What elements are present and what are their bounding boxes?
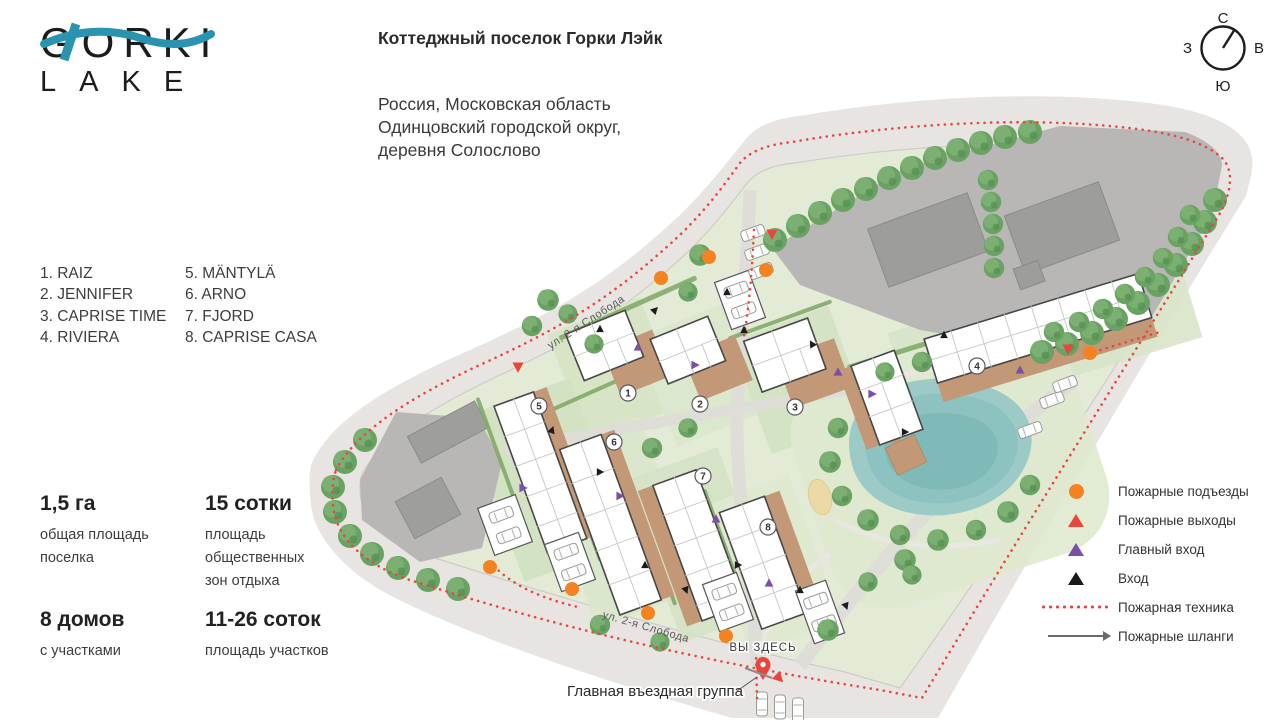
page-title: Коттеджный поселок Горки Лэйк	[378, 28, 708, 49]
stat-value: 11-26 соток	[205, 608, 365, 632]
fire-access-circle-icon	[1069, 484, 1084, 499]
house-list-column-1: 1. RAIZ 2. JENNIFER 3. CAPRISE TIME 4. R…	[40, 263, 190, 348]
legend-label: Вход	[1118, 571, 1149, 586]
stat-houses-count: 8 домов с участками	[40, 608, 200, 663]
stat-label: зон отдыха	[205, 570, 365, 593]
legend-row-fire-trucks: Пожарная техника	[1040, 599, 1275, 615]
stat-value: 8 домов	[40, 608, 200, 632]
legend-label: Пожарные шланги	[1118, 629, 1234, 644]
stat-value: 15 сотки	[205, 492, 365, 516]
legend-row-fire-access: Пожарные подъезды	[1040, 483, 1275, 499]
legend-row-main-entrance: Главный вход	[1040, 541, 1275, 557]
house-number-4: 4	[969, 358, 985, 374]
fire-exit-triangle-icon	[1068, 514, 1084, 527]
stat-label: общая площадь	[40, 524, 200, 547]
compass-south-label: Ю	[1215, 78, 1230, 95]
address-line-3: деревня Солослово	[378, 139, 708, 162]
house-list-item: 7. FJORD	[185, 306, 345, 327]
stat-value: 1,5 га	[40, 492, 200, 516]
svg-text:2: 2	[697, 400, 703, 411]
house-list-item: 3. CAPRISE TIME	[40, 306, 190, 327]
you-are-here-label: ВЫ ЗДЕСЬ	[729, 642, 796, 654]
legend-label: Пожарные подъезды	[1118, 484, 1249, 499]
legend-label: Главный вход	[1118, 542, 1204, 557]
house-list-item: 4. RIVIERA	[40, 327, 190, 348]
house-list-item: 6. ARNO	[185, 284, 345, 305]
legend-label: Пожарная техника	[1118, 600, 1234, 615]
house-number-7: 7	[695, 468, 711, 484]
logo-word-lake: LAKE	[40, 68, 215, 97]
legend-row-fire-hoses: Пожарные шланги	[1040, 628, 1275, 644]
svg-text:4: 4	[974, 362, 980, 373]
stat-total-area: 1,5 га общая площадь поселка	[40, 492, 200, 570]
address: Россия, Московская область Одинцовский г…	[378, 93, 708, 162]
stat-label: поселка	[40, 547, 200, 570]
compass: С Ю З В	[1183, 10, 1264, 95]
logo: GORKI LAKE	[40, 22, 215, 97]
stat-public-area: 15 сотки площадь общественных зон отдыха	[205, 492, 365, 593]
svg-text:5: 5	[536, 402, 542, 413]
map-legend: Пожарные подъезды Пожарные выходы Главны…	[1040, 483, 1275, 657]
compass-north-label: С	[1218, 10, 1229, 27]
stat-label: площадь участков	[205, 640, 365, 663]
house-list: 1. RAIZ 2. JENNIFER 3. CAPRISE TIME 4. R…	[40, 263, 190, 348]
svg-text:1: 1	[625, 389, 631, 400]
address-line-2: Одинцовский городской округ,	[378, 116, 708, 139]
house-number-5: 5	[531, 398, 547, 414]
svg-text:3: 3	[792, 403, 798, 414]
house-number-2: 2	[692, 396, 708, 412]
header: Коттеджный поселок Горки Лэйк Россия, Мо…	[378, 28, 708, 162]
page: 1 2 3 4 5 6 7 8 ул. 2-я Слобода ул. 2-я …	[0, 0, 1280, 720]
stat-plot-sizes: 11-26 соток площадь участков	[205, 608, 365, 663]
svg-text:6: 6	[611, 438, 617, 449]
compass-west-label: З	[1183, 40, 1192, 57]
house-list-item: 8. CAPRISE CASA	[185, 327, 345, 348]
svg-text:7: 7	[700, 472, 706, 483]
fire-hose-arrow-icon	[1048, 635, 1104, 637]
house-number-1: 1	[620, 385, 636, 401]
house-number-6: 6	[606, 434, 622, 450]
stat-label: общественных	[205, 547, 365, 570]
legend-row-fire-exit: Пожарные выходы	[1040, 512, 1275, 528]
house-number-3: 3	[787, 399, 803, 415]
entrance-triangle-icon	[1068, 572, 1084, 585]
address-line-1: Россия, Московская область	[378, 93, 708, 116]
legend-row-entrance: Вход	[1040, 570, 1275, 586]
main-entrance-label: Главная въездная группа	[567, 683, 744, 700]
house-list-item: 2. JENNIFER	[40, 284, 190, 305]
house-number-8: 8	[760, 519, 776, 535]
main-entrance-triangle-icon	[1068, 543, 1084, 556]
house-list-item: 5. MÄNTYLÄ	[185, 263, 345, 284]
logo-wave-icon	[40, 22, 215, 64]
house-list-item: 1. RAIZ	[40, 263, 190, 284]
compass-east-label: В	[1254, 40, 1264, 57]
svg-text:8: 8	[765, 523, 771, 534]
legend-label: Пожарные выходы	[1118, 513, 1236, 528]
stat-label: площадь	[205, 524, 365, 547]
house-list-column-2: 5. MÄNTYLÄ 6. ARNO 7. FJORD 8. CAPRISE C…	[185, 263, 345, 348]
fire-truck-dotted-line-icon	[1040, 605, 1112, 609]
stat-label: с участками	[40, 640, 200, 663]
